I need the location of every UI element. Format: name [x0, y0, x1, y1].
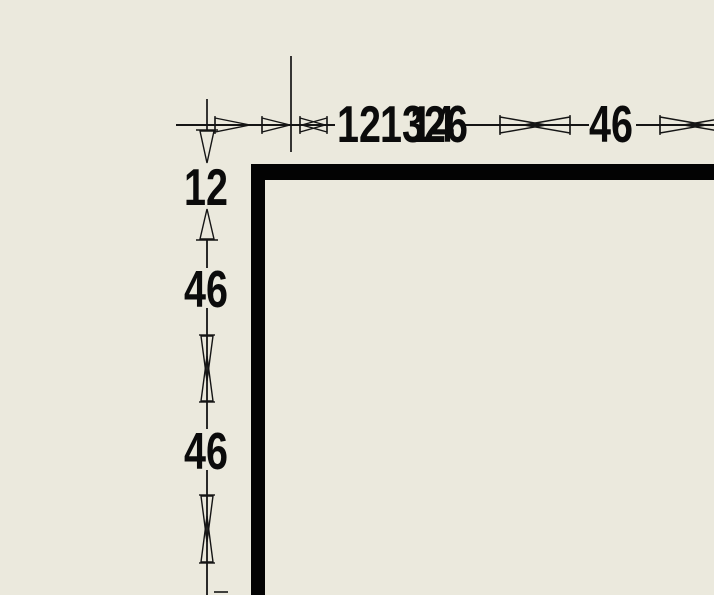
- dimension-label-left_chain-0[interactable]: 12: [184, 162, 228, 214]
- dimension-label-top_chain-4[interactable]: 46: [589, 99, 633, 151]
- wall[interactable]: [251, 164, 714, 595]
- dimension-label-left_chain-1[interactable]: 46: [184, 264, 228, 316]
- wall-top-edge[interactable]: [251, 164, 714, 180]
- dimension-label-top_chain-0[interactable]: 12: [337, 99, 381, 151]
- drawing-sheet[interactable]: 1213142646 124646: [0, 0, 714, 595]
- dimension-label-top_chain-3[interactable]: 26: [424, 99, 468, 151]
- drawing-geometry: [0, 0, 714, 595]
- wall-left-edge[interactable]: [251, 164, 265, 595]
- dimension-label-left_chain-2[interactable]: 46: [184, 426, 228, 478]
